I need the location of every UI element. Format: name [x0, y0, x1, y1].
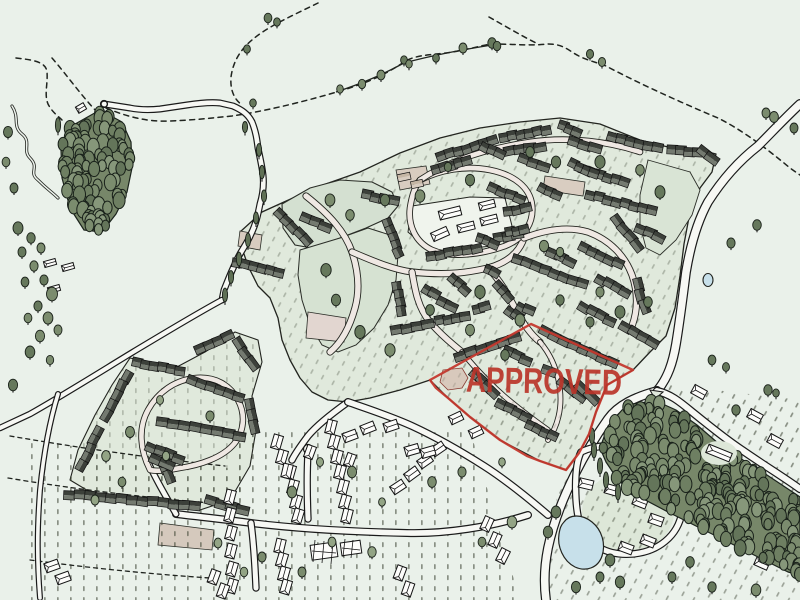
svg-text:APPROVED: APPROVED: [466, 359, 623, 403]
